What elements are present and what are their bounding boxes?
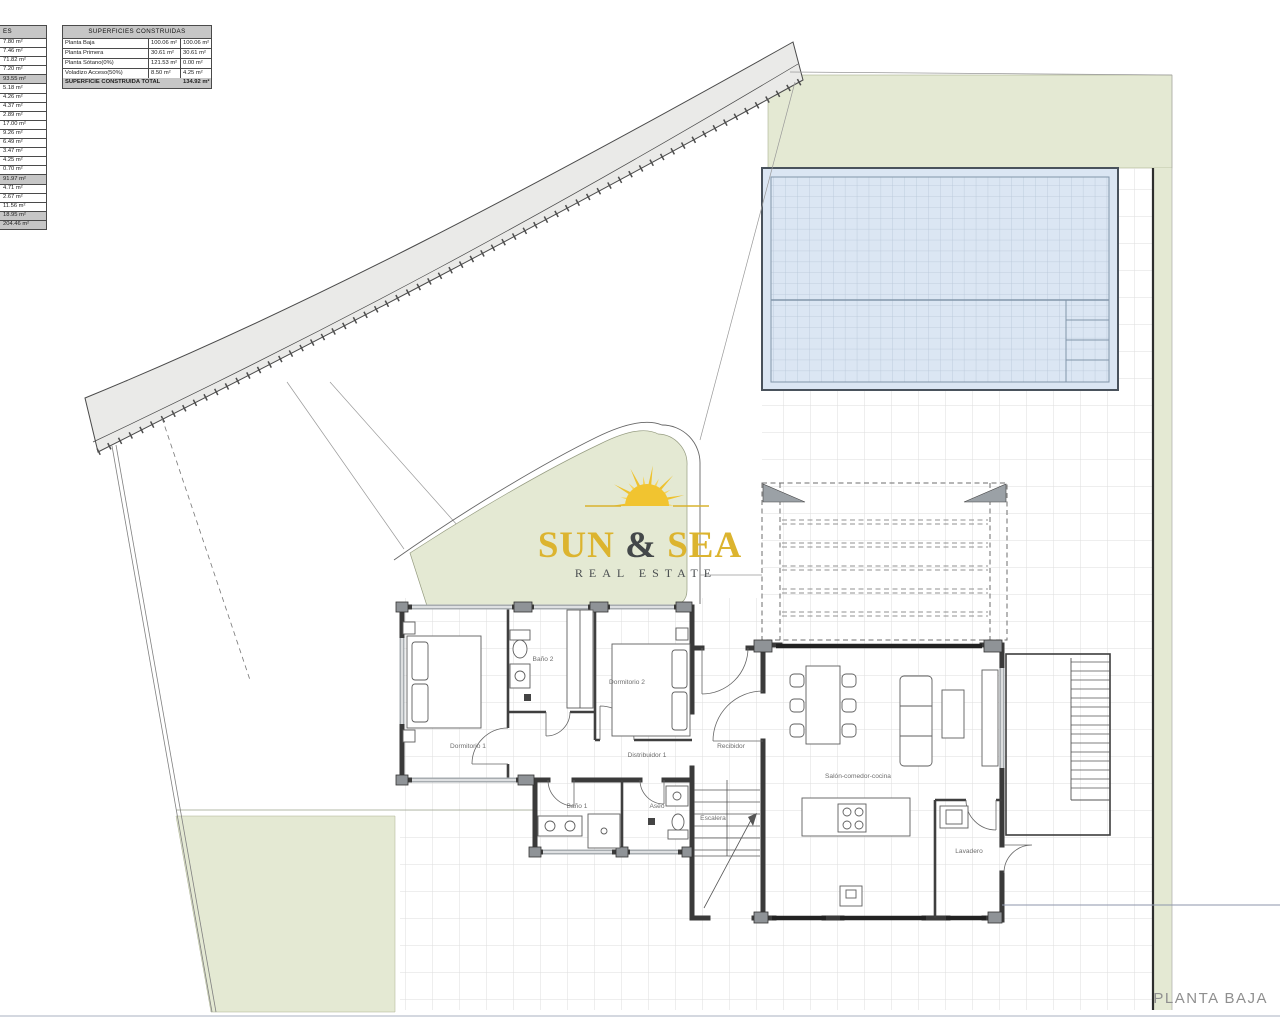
chair-icon [842,699,856,712]
table-cell: 30.61 m² [181,49,211,58]
table-row: Voladizo Acceso(50%)8.50 m²4.25 m² [63,69,211,78]
area-value-cell: 5.18 m² [0,84,46,93]
area-value-cell: 4.37 m² [0,103,46,112]
area-value-cell: 9.26 m² [0,130,46,139]
table-rows: 7.80 m²7.46 m²71.82 m²7.20 m²93.55 m²5.1… [0,39,46,229]
chair-icon [790,674,804,687]
table-cell: 4.25 m² [181,69,211,78]
table-total-row: SUPERFICIE CONSTRUIDA TOTAL 134.92 m² [63,78,211,88]
area-value-cell: 91.97 m² [0,175,46,184]
floor-plan-drawing: SUN & SEA REAL ESTATE Dormitorio 1 Baño … [0,0,1280,1024]
superficies-utiles-table: ES 7.80 m²7.46 m²71.82 m²7.20 m²93.55 m²… [0,25,47,230]
room-label-dormitorio1: Dormitorio 1 [450,743,486,750]
dining-table-icon [806,666,840,744]
logo-tagline: REAL ESTATE [575,566,717,580]
logo-wordmark: SUN & SEA [538,525,742,566]
area-value-cell: 71.82 m² [0,57,46,66]
area-value-cell: 93.55 m² [0,75,46,84]
area-value-cell: 7.80 m² [0,39,46,48]
plan-title: PLANTA BAJA [1153,990,1268,1007]
area-value-cell: 7.20 m² [0,66,46,75]
table-rows: Planta Baja100.06 m²100.06 m²Planta Prim… [63,39,211,78]
table-cell: 8.50 m² [149,69,181,78]
table-cell: Planta Primera [63,49,149,58]
area-value-cell: 6.49 m² [0,139,46,148]
table-cell: Voladizo Acceso(50%) [63,69,149,78]
room-label-dormitorio2: Dormitorio 2 [609,679,645,686]
area-value-cell: 3.47 m² [0,148,46,157]
toilet-icon [668,830,688,839]
area-value-cell: 0.70 m² [0,166,46,175]
room-label-distribuidor: Distribuidor 1 [628,752,667,759]
sideboard-icon [982,670,998,766]
room-label-bano2: Baño 2 [533,656,554,663]
area-value-cell: 4.25 m² [0,157,46,166]
superficies-construidas-table: SUPERFICIES CONSTRUIDAS Planta Baja100.0… [62,25,212,89]
chair-icon [790,699,804,712]
table-row: Planta Sótano(0%)121.53 m²0.00 m² [63,59,211,69]
entry-garden [410,431,687,609]
table-cell: 30.61 m² [149,49,181,58]
area-value-cell: 7.46 m² [0,48,46,57]
chair-icon [842,724,856,737]
table-row: Planta Baja100.06 m²100.06 m² [63,39,211,49]
toilet-icon [510,630,530,640]
room-label-escalera: Escalera [700,815,726,822]
room-label-lavadero: Lavadero [955,848,983,855]
table-cell: 100.06 m² [181,39,211,48]
table-row: Planta Primera30.61 m²30.61 m² [63,49,211,59]
table-cell: 0.00 m² [181,59,211,68]
swimming-pool [762,168,1118,390]
area-value-cell: 18.95 m² [0,212,46,221]
total-value: 134.92 m² [181,78,211,88]
area-value-cell: 2.89 m² [0,112,46,121]
area-value-cell: 4.26 m² [0,94,46,103]
area-value-cell: 17.00 m² [0,121,46,130]
room-label-salon: Salón-comedor-cocina [825,773,891,780]
area-value-cell: 4.71 m² [0,185,46,194]
room-label-recibidor: Recibidor [717,743,746,750]
coffee-table-icon [942,690,964,738]
chair-icon [790,724,804,737]
floor-plan-page: SUN & SEA REAL ESTATE Dormitorio 1 Baño … [0,0,1280,1024]
sofa-icon [900,676,932,766]
table-cell: Planta Sótano(0%) [63,59,149,68]
table-cell: 100.06 m² [149,39,181,48]
room-label-aseo: Aseo [649,803,664,810]
area-value-cell: 2.67 m² [0,194,46,203]
table-cell: 121.53 m² [149,59,181,68]
table-cell: Planta Baja [63,39,149,48]
room-label-bano1: Baño 1 [567,803,588,810]
total-label: SUPERFICIE CONSTRUIDA TOTAL [63,78,181,88]
chair-icon [842,674,856,687]
area-value-cell: 11.56 m² [0,203,46,212]
table-header: SUPERFICIES CONSTRUIDAS [63,26,211,39]
area-value-cell: 204.46 m² [0,221,46,229]
table-header: ES [0,26,46,39]
